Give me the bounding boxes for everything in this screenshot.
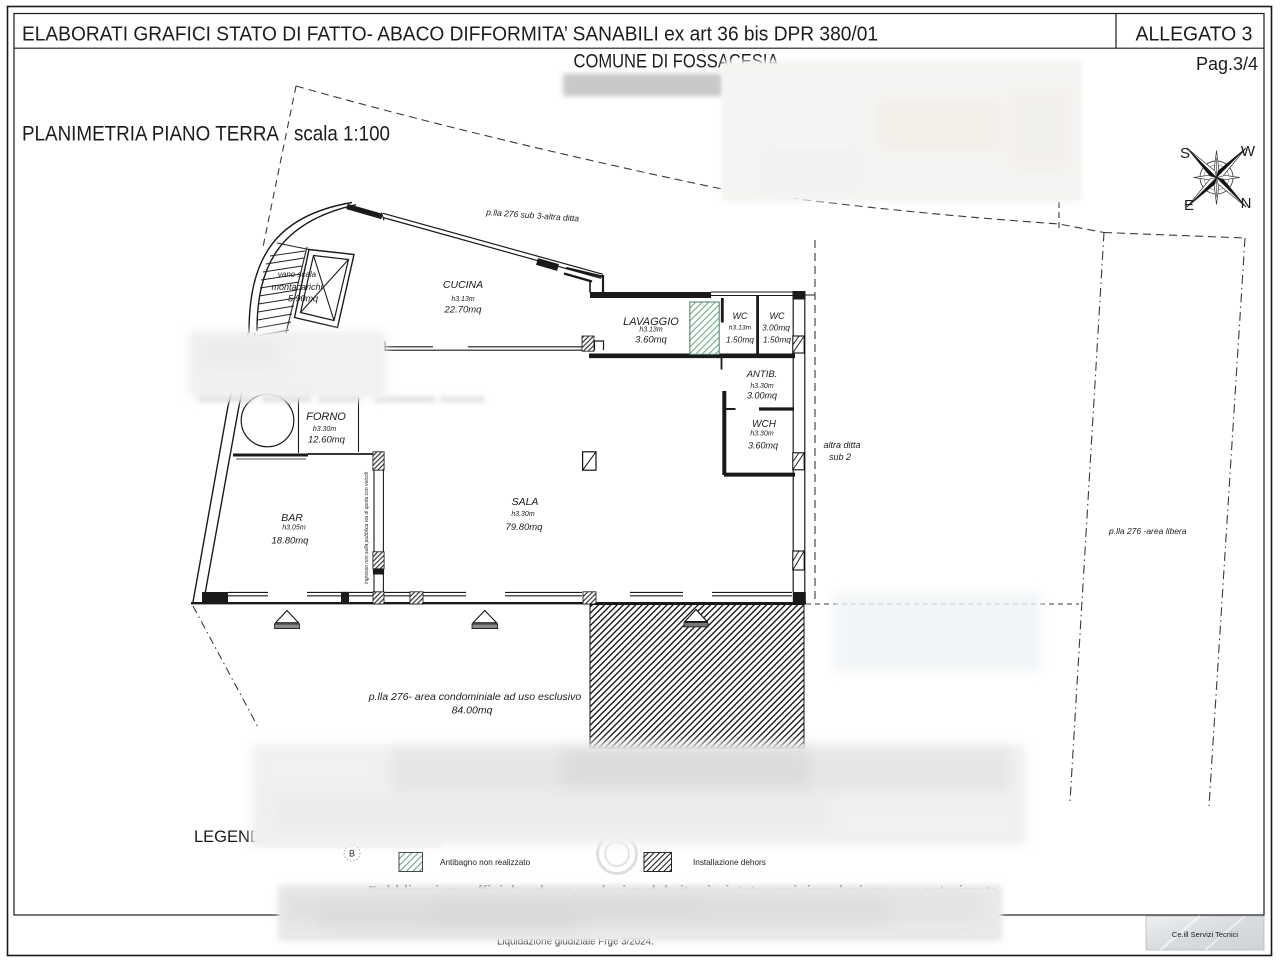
svg-text:altra ditta: altra ditta	[823, 440, 860, 450]
svg-text:h3.13m: h3.13m	[451, 296, 475, 303]
svg-text:PLANIMETRIA PIANO TERRA: PLANIMETRIA PIANO TERRA	[22, 123, 279, 146]
svg-text:3.60mq: 3.60mq	[748, 441, 778, 451]
svg-text:montacarichi: montacarichi	[271, 282, 323, 292]
svg-text:Installazione dehors: Installazione dehors	[693, 858, 766, 867]
svg-text:h3.30m: h3.30m	[511, 511, 535, 518]
svg-text:p.lla 276- area condominiale a: p.lla 276- area condominiale ad uso escl…	[368, 691, 582, 703]
svg-text:E: E	[1184, 197, 1194, 214]
svg-text:ALLEGATO 3: ALLEGATO 3	[1136, 24, 1253, 46]
svg-text:WC: WC	[770, 311, 785, 321]
svg-text:W: W	[1241, 143, 1256, 160]
svg-text:3.00mq: 3.00mq	[747, 391, 777, 401]
svg-text:79.80mq: 79.80mq	[506, 522, 544, 533]
svg-text:5.90mq: 5.90mq	[288, 294, 318, 304]
svg-text:ANTIB.: ANTIB.	[746, 369, 778, 380]
svg-text:N: N	[1241, 195, 1252, 212]
svg-text:h3.05m: h3.05m	[282, 525, 306, 532]
svg-text:B: B	[349, 849, 355, 859]
svg-text:WC: WC	[733, 311, 748, 321]
svg-text:vano scala: vano scala	[278, 270, 317, 279]
svg-text:ELABORATI GRAFICI STATO DI FAT: ELABORATI GRAFICI STATO DI FATTO- ABACO …	[22, 23, 878, 46]
svg-text:h3.13m: h3.13m	[639, 327, 663, 334]
svg-text:BAR: BAR	[281, 512, 303, 524]
svg-text:1.50mq: 1.50mq	[763, 335, 791, 345]
svg-text:ingresso non sulla pubblica vi: ingresso non sulla pubblica via di quota…	[364, 471, 370, 584]
svg-text:18.80mq: 18.80mq	[272, 536, 310, 547]
svg-text:sub 2: sub 2	[829, 452, 851, 462]
svg-text:Ce.ill Servizi Tecnici: Ce.ill Servizi Tecnici	[1172, 930, 1238, 939]
svg-text:SALA: SALA	[512, 496, 539, 508]
svg-text:h3.30m: h3.30m	[313, 426, 337, 433]
svg-text:12.60mq: 12.60mq	[308, 435, 346, 446]
svg-text:S: S	[1180, 145, 1190, 162]
svg-text:h3.30m: h3.30m	[750, 431, 774, 438]
svg-text:3.60mq: 3.60mq	[635, 335, 667, 346]
svg-text:Antibagno non realizzato: Antibagno non realizzato	[440, 858, 531, 867]
svg-text:p.lla 276 -area libera: p.lla 276 -area libera	[1108, 526, 1187, 536]
svg-text:CUCINA: CUCINA	[443, 279, 483, 291]
svg-text:h3.30m: h3.30m	[750, 383, 774, 390]
svg-text:1.50mq: 1.50mq	[726, 335, 754, 345]
svg-text:h3.13m: h3.13m	[729, 325, 752, 332]
svg-text:3.00mq: 3.00mq	[762, 323, 790, 333]
svg-text:Pag.3/4: Pag.3/4	[1196, 54, 1258, 74]
svg-text:22.70mq: 22.70mq	[444, 305, 483, 316]
svg-text:scala 1:100: scala 1:100	[294, 123, 390, 146]
svg-text:FORNO: FORNO	[306, 411, 346, 423]
svg-text:WCH: WCH	[752, 419, 777, 430]
svg-text:84.00mq: 84.00mq	[452, 705, 493, 717]
